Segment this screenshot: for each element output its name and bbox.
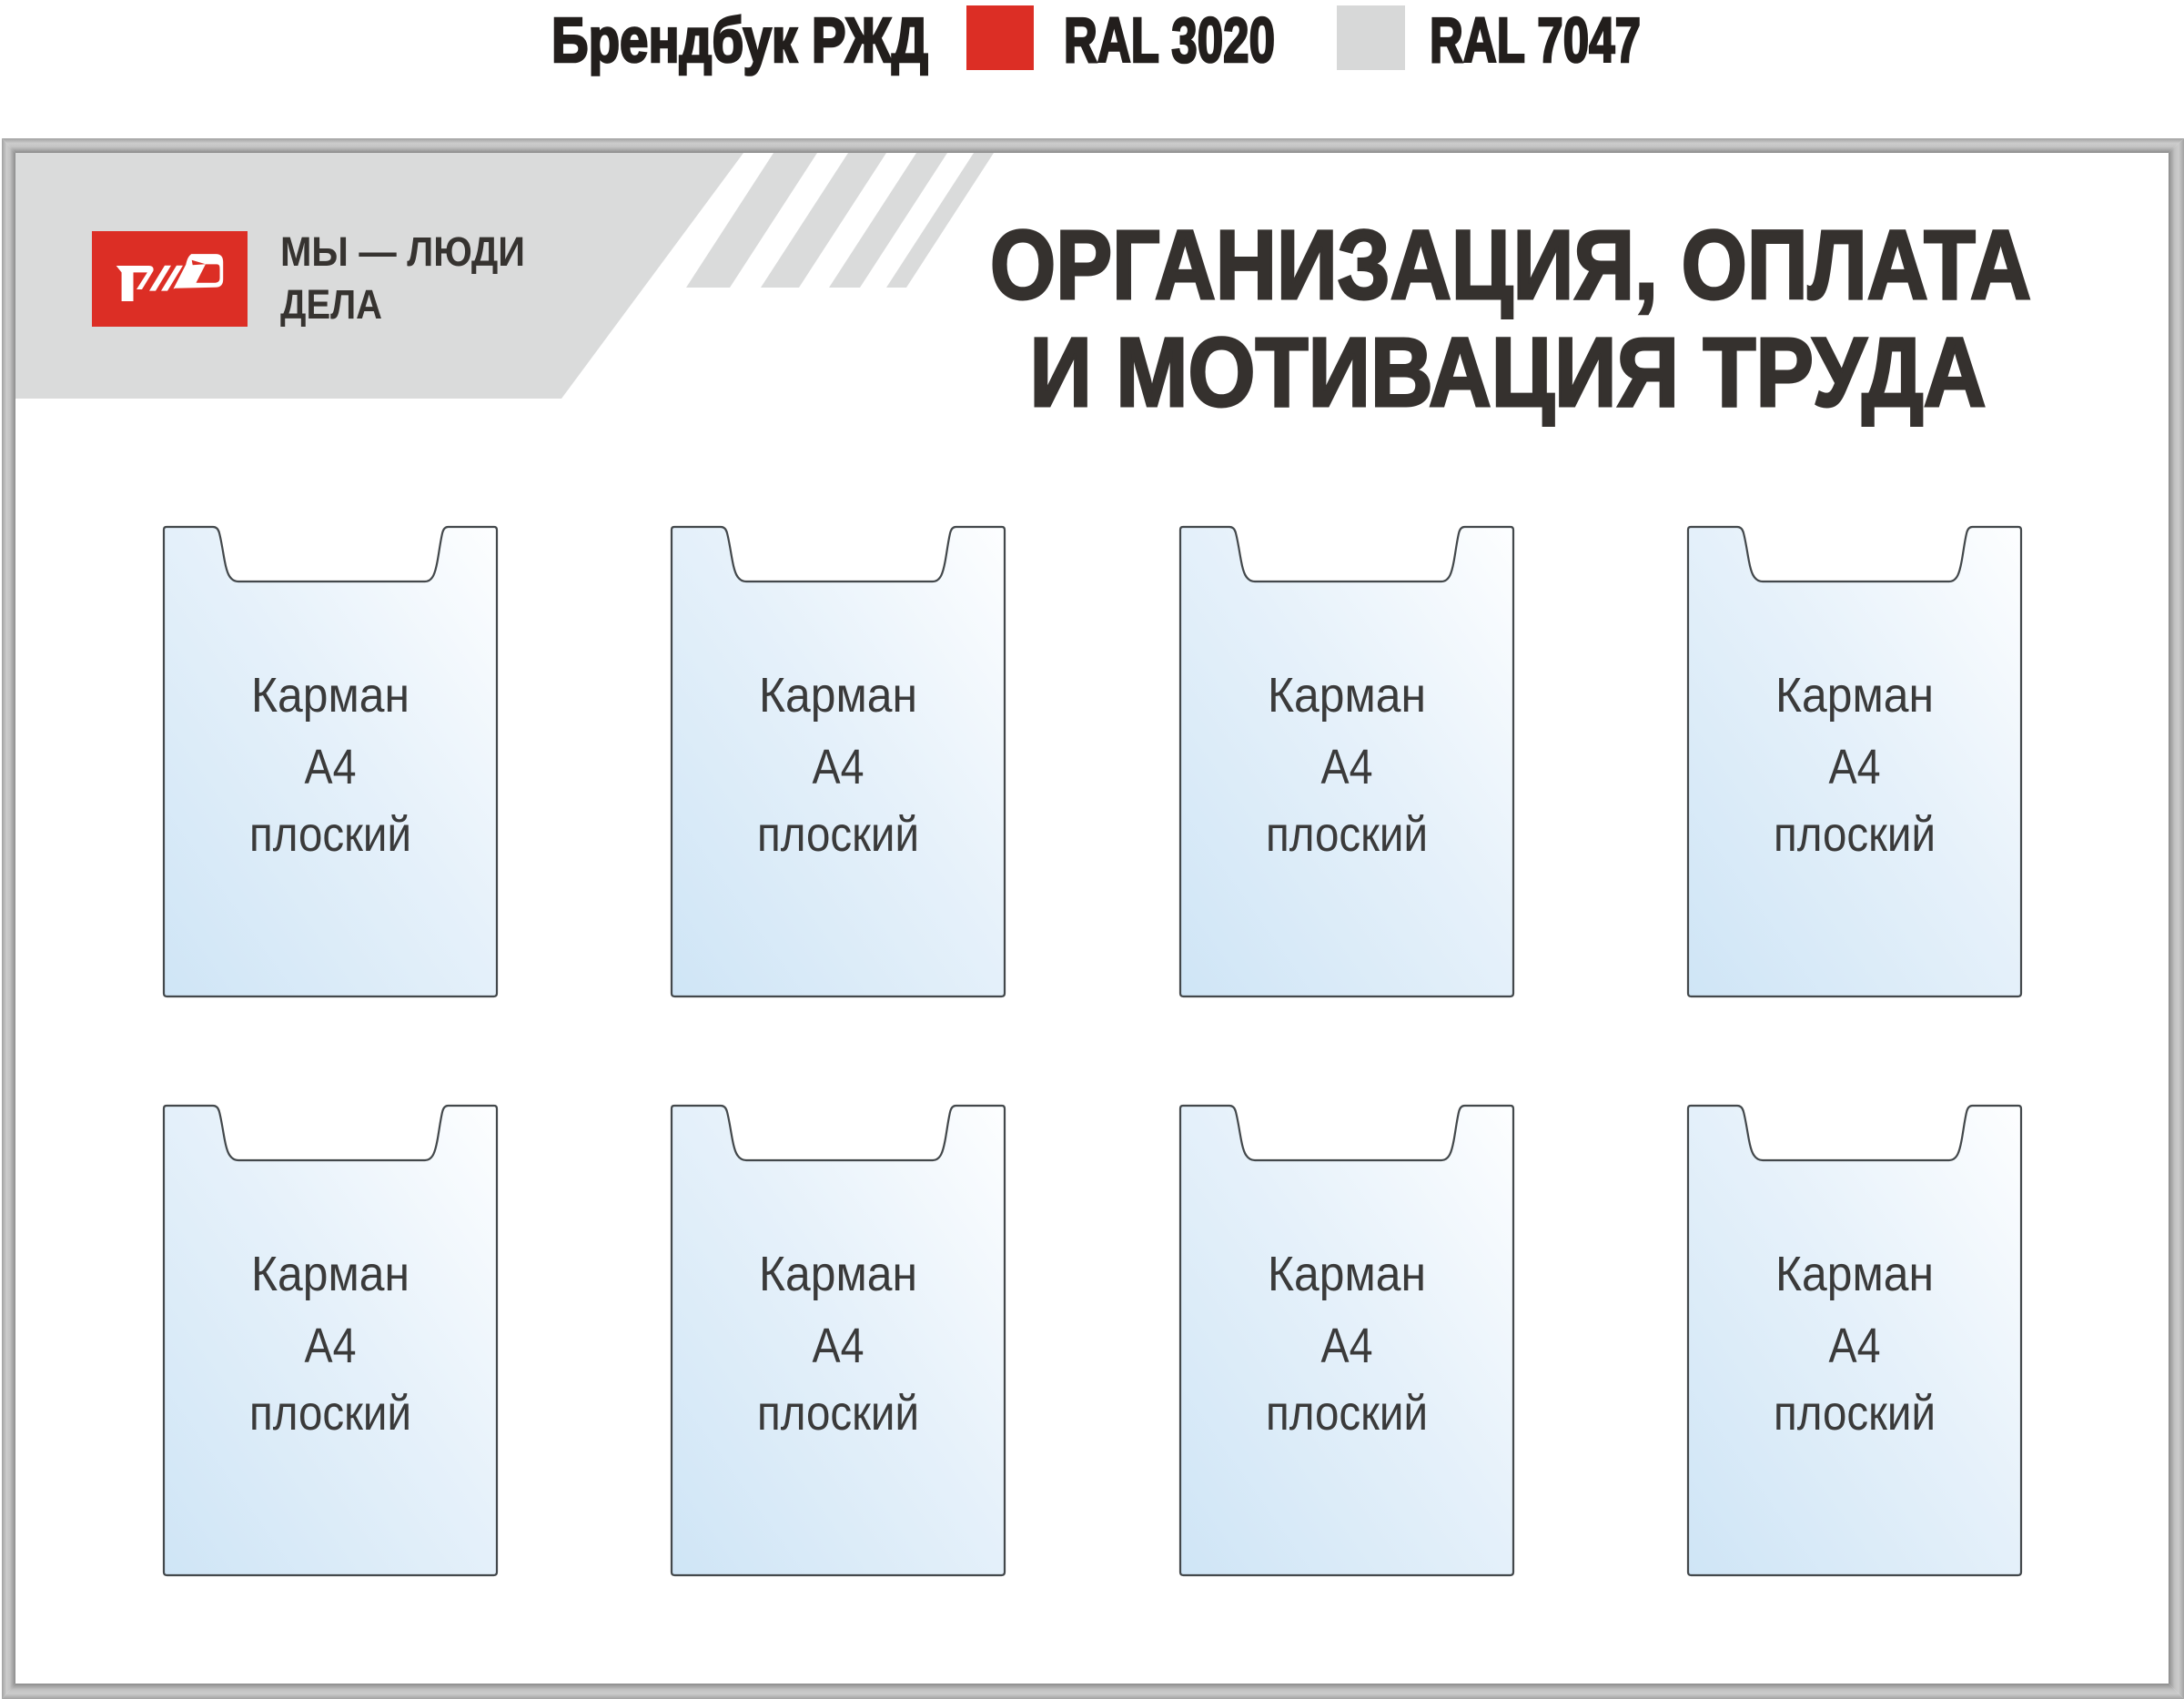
- svg-text:А4: А4: [813, 1319, 864, 1373]
- svg-text:Карман: Карман: [1268, 668, 1426, 723]
- svg-text:И МОТИВАЦИЯ ТРУДА: И МОТИВАЦИЯ ТРУДА: [1030, 317, 1987, 427]
- svg-text:RAL 7047: RAL 7047: [1430, 5, 1641, 76]
- svg-text:плоский: плоский: [757, 1386, 919, 1441]
- svg-text:А4: А4: [1829, 740, 1881, 794]
- svg-text:плоский: плоский: [1774, 807, 1936, 862]
- svg-text:А4: А4: [1321, 740, 1373, 794]
- svg-text:Карман: Карман: [251, 668, 409, 723]
- svg-text:Карман: Карман: [1268, 1247, 1426, 1301]
- svg-text:Карман: Карман: [1775, 668, 1934, 723]
- svg-text:Карман: Карман: [759, 1247, 917, 1301]
- svg-text:Карман: Карман: [1775, 1247, 1934, 1301]
- svg-text:А4: А4: [1321, 1319, 1373, 1373]
- svg-text:плоский: плоский: [1266, 807, 1428, 862]
- svg-text:плоский: плоский: [249, 807, 411, 862]
- svg-text:плоский: плоский: [249, 1386, 411, 1441]
- svg-text:Брендбук РЖД: Брендбук РЖД: [551, 5, 928, 76]
- svg-text:А4: А4: [1829, 1319, 1881, 1373]
- svg-text:А4: А4: [305, 740, 357, 794]
- svg-text:А4: А4: [305, 1319, 357, 1373]
- svg-text:плоский: плоский: [1266, 1386, 1428, 1441]
- svg-text:Карман: Карман: [251, 1247, 409, 1301]
- svg-text:ДЕЛА: ДЕЛА: [280, 281, 382, 328]
- svg-text:плоский: плоский: [757, 807, 919, 862]
- svg-text:Карман: Карман: [759, 668, 917, 723]
- svg-text:МЫ — ЛЮДИ: МЫ — ЛЮДИ: [280, 228, 525, 275]
- svg-text:А4: А4: [813, 740, 864, 794]
- svg-text:RAL 3020: RAL 3020: [1064, 5, 1275, 76]
- svg-text:плоский: плоский: [1774, 1386, 1936, 1441]
- svg-text:ОРГАНИЗАЦИЯ, ОПЛАТА: ОРГАНИЗАЦИЯ, ОПЛАТА: [990, 209, 2031, 319]
